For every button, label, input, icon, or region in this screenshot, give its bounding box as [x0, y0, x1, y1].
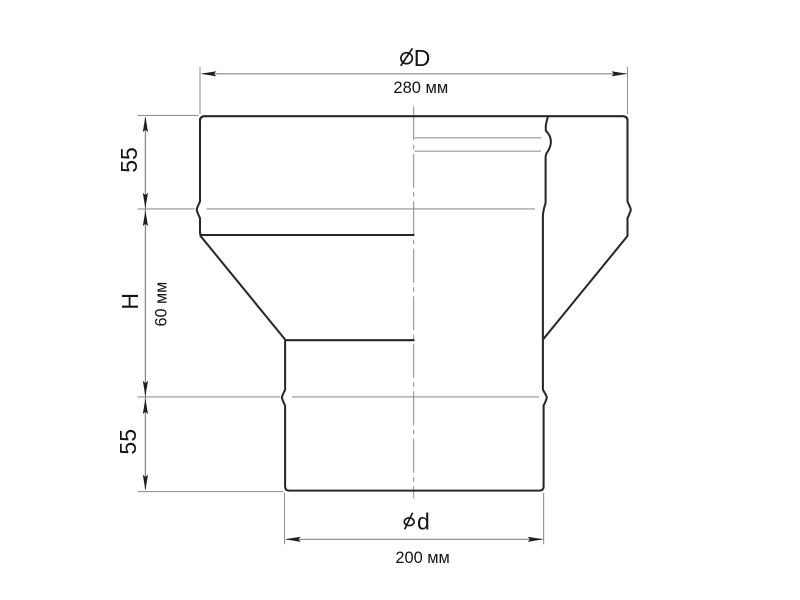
- svg-text:55: 55: [115, 429, 141, 455]
- svg-text:D: D: [414, 45, 431, 71]
- svg-text:d: d: [417, 509, 430, 535]
- svg-text:280 мм: 280 мм: [393, 79, 448, 97]
- svg-text:200 мм: 200 мм: [395, 549, 449, 567]
- svg-text:H: H: [117, 293, 143, 310]
- svg-text:60 мм: 60 мм: [153, 282, 171, 327]
- svg-text:55: 55: [116, 147, 142, 173]
